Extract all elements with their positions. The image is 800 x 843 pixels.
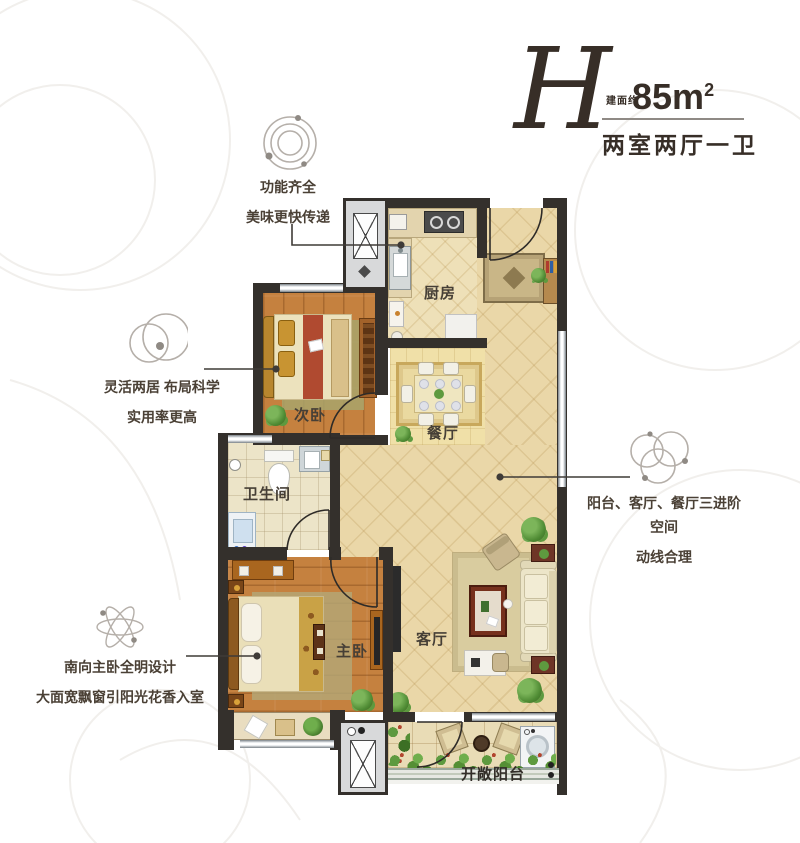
annotation-kitchen: 功能齐全 美味更快传递: [218, 176, 358, 230]
living-balcony-window: [472, 713, 555, 721]
room-label-bathroom: 卫生间: [219, 483, 315, 504]
place-setting: [451, 379, 461, 389]
board-item: [395, 311, 400, 316]
side-table: [531, 656, 555, 674]
burner-icon: [430, 216, 443, 229]
bay-flowers: [303, 717, 323, 736]
bedroom2-window: [280, 284, 343, 292]
wall-bedroom2-left: [253, 283, 263, 443]
annotation-line: 实用率更高: [88, 406, 236, 430]
master-bed: [238, 596, 324, 692]
bed-runner: [303, 315, 323, 399]
doormat-diamond-motif: [503, 267, 526, 290]
shaft-diamond-icon: [358, 265, 371, 278]
corridor-window: [558, 331, 566, 487]
dining-chair: [418, 362, 434, 375]
master-dresser: [232, 560, 294, 580]
rug-ornament: [503, 599, 513, 609]
vanity-tray: [321, 450, 330, 461]
sofa-cushion: [524, 574, 548, 599]
place-setting: [451, 401, 461, 411]
annotation-line: 南向主卧全明设计: [28, 656, 212, 680]
master-bay-window: [240, 740, 334, 748]
washer-knob: [531, 729, 535, 733]
floor-drain-icon: [548, 762, 554, 768]
side-table: [531, 544, 555, 562]
washer-knob: [524, 729, 530, 735]
pillow: [241, 645, 262, 684]
annotation-living: 阳台、客厅、餐厅三进阶空间 动线合理: [585, 492, 743, 569]
cutting-board: [389, 301, 404, 327]
wall-door-post: [329, 547, 341, 560]
wall-left-lower: [218, 433, 228, 718]
folded-quilt: [331, 319, 349, 397]
nightstand: [228, 694, 244, 708]
table-centerpiece: [434, 389, 444, 399]
book-red: [546, 261, 549, 273]
plan-subtitle: 两室两厅一卫: [602, 126, 778, 160]
overlap-circles-icon: [126, 312, 188, 364]
bedroom2-bed: [274, 314, 352, 400]
chair-cushion: [442, 729, 463, 750]
place-setting: [419, 401, 429, 411]
annotation-line: 动线合理: [585, 546, 743, 570]
wall-right-balcony: [557, 722, 567, 795]
utility-shaft-bottom: [338, 720, 388, 795]
bedroom2-headboard: [263, 316, 274, 398]
dining-chair: [443, 362, 459, 375]
place-setting: [435, 379, 445, 389]
basin: [233, 519, 253, 543]
toilet-tank: [264, 450, 294, 462]
wall-bathroom-right: [330, 433, 340, 560]
room-label-kitchen: 厨房: [404, 282, 476, 303]
table-plant-box: [481, 601, 489, 612]
bathroom-vanity: [299, 446, 330, 472]
title-divider-line: [602, 118, 744, 120]
wall-kitchen-right: [477, 198, 487, 258]
wall-master-right: [383, 547, 393, 722]
wall-bedroom2-right: [375, 283, 388, 395]
desk-chair: [492, 653, 509, 672]
lamp-icon: [234, 699, 240, 705]
pillow: [278, 320, 295, 346]
living-plant-bottom: [517, 678, 542, 703]
bay-tea-tray: [275, 719, 295, 736]
entry-plant: [531, 268, 546, 283]
chair-cushion: [499, 729, 520, 750]
dining-table: [414, 375, 463, 413]
book-blue: [550, 261, 553, 273]
faucet-icon: [398, 248, 403, 253]
place-setting: [419, 379, 429, 389]
annotation-line: 美味更快传递: [218, 206, 358, 230]
dining-chair: [464, 385, 476, 403]
shaft-dot-white: [347, 727, 356, 736]
coffee-table: [469, 585, 507, 637]
nightstand: [228, 580, 244, 594]
side-table-plant: [539, 661, 549, 671]
wall-kitchen-bottom: [375, 338, 487, 348]
toilet-paper-holder: [229, 459, 241, 471]
pillow: [241, 603, 262, 642]
dresser-item: [239, 566, 249, 576]
master-headboard: [228, 598, 239, 690]
shelf-item: [317, 630, 323, 636]
place-setting: [435, 401, 445, 411]
vanity-sink: [304, 451, 320, 469]
master-bay-window-seat: [228, 712, 338, 740]
kitchen-table: [445, 314, 477, 339]
desk-item: [471, 658, 480, 667]
faucet-point-icon: [548, 772, 554, 778]
side-table-plant: [539, 549, 549, 559]
annotation-line: 大面宽飘窗引阳光花香入室: [28, 686, 212, 710]
wardrobe-hanging-clothes: [363, 323, 374, 394]
pillow: [278, 351, 295, 377]
sofa-cushion: [524, 600, 548, 625]
annotation-line: 阳台、客厅、餐厅三进阶空间: [585, 492, 743, 540]
master-plant: [351, 689, 373, 711]
room-label-master-bedroom: 主卧: [316, 640, 388, 661]
dining-chair: [401, 385, 413, 403]
stove: [424, 211, 464, 233]
room-label-dining: 餐厅: [407, 422, 479, 443]
wall-master-top-left: [218, 547, 287, 560]
annotation-master: 南向主卧全明设计 大面宽飘窗引阳光花香入室: [28, 656, 212, 710]
sofa: [520, 568, 557, 654]
room-label-balcony: 开敞阳台: [443, 763, 543, 784]
annotation-line: 功能齐全: [218, 176, 358, 200]
living-plant-top: [521, 517, 546, 542]
area-superscript: 2: [704, 80, 714, 100]
kitchen-appliance: [389, 214, 407, 230]
entry-corridor-floor: [477, 208, 557, 445]
orbit-rings-icon: [260, 112, 320, 174]
plan-type-letter: H: [514, 34, 614, 164]
shaft-dot-black: [358, 727, 365, 734]
dresser-item: [273, 566, 283, 576]
annotation-bedroom: 灵活两居 布局科学 实用率更高: [88, 376, 236, 430]
bay-cushion: [244, 715, 269, 740]
bathroom-window: [228, 435, 272, 443]
atom-orbits-icon: [94, 604, 146, 650]
room-label-second-bedroom: 次卧: [274, 404, 346, 425]
room-label-living-room: 客厅: [396, 628, 468, 649]
shaft-duct-icon: [350, 740, 376, 788]
burner-icon: [447, 216, 460, 229]
area-value: 85m2: [632, 76, 714, 118]
sofa-backrest: [549, 571, 556, 653]
area-number: 85m: [632, 76, 704, 117]
sofa-cushion: [524, 626, 548, 651]
floorplan-page: H 建面约 85m2 两室两厅一卫: [0, 0, 800, 843]
annotation-line: 灵活两居 布局科学: [88, 376, 236, 400]
triple-circles-icon: [628, 430, 690, 486]
lamp-icon: [234, 585, 240, 591]
sink-basin: [393, 253, 408, 277]
